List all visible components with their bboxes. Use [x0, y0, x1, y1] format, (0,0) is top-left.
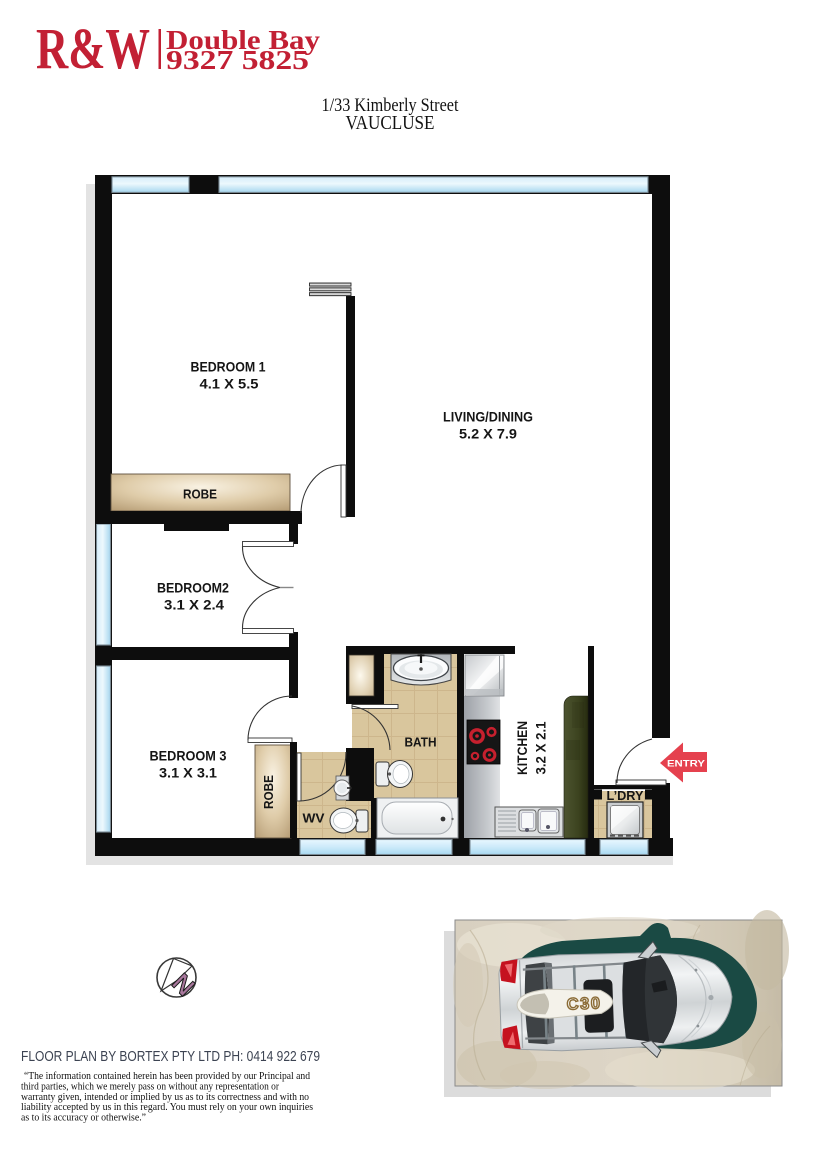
svg-text:FLOOR PLAN BY BORTEX PTY LTD P: FLOOR PLAN BY BORTEX PTY LTD PH: 0414 92… — [21, 1049, 320, 1065]
svg-text:L’DRY: L’DRY — [607, 789, 645, 803]
svg-text:3.2 X 2.1: 3.2 X 2.1 — [534, 721, 549, 774]
svg-text:5.2 X 7.9: 5.2 X 7.9 — [459, 426, 517, 442]
svg-text:3.1 X 3.1: 3.1 X 3.1 — [159, 765, 217, 781]
svg-text:C30: C30 — [566, 994, 601, 1013]
svg-text:VAUCLUSE: VAUCLUSE — [346, 112, 435, 134]
svg-text:as to its accuracy or otherwis: as to its accuracy or otherwise.” — [21, 1112, 146, 1124]
svg-text:LIVING/DINING: LIVING/DINING — [443, 409, 533, 425]
svg-text:ROBE: ROBE — [261, 775, 276, 809]
svg-text:3.1 X 2.4: 3.1 X 2.4 — [164, 597, 224, 613]
svg-text:9327 5825: 9327 5825 — [166, 45, 309, 75]
svg-text:R&W: R&W — [36, 16, 150, 81]
svg-text:WV: WV — [303, 811, 325, 826]
svg-text:BEDROOM 3: BEDROOM 3 — [150, 748, 227, 764]
svg-text:ROBE: ROBE — [183, 487, 217, 502]
svg-text:BEDROOM2: BEDROOM2 — [157, 580, 229, 596]
svg-text:KITCHEN: KITCHEN — [515, 721, 530, 775]
svg-text:4.1 X 5.5: 4.1 X 5.5 — [200, 376, 259, 392]
svg-text:ENTRY: ENTRY — [667, 759, 706, 770]
svg-text:BEDROOM 1: BEDROOM 1 — [191, 359, 266, 375]
svg-text:BATH: BATH — [405, 735, 437, 750]
